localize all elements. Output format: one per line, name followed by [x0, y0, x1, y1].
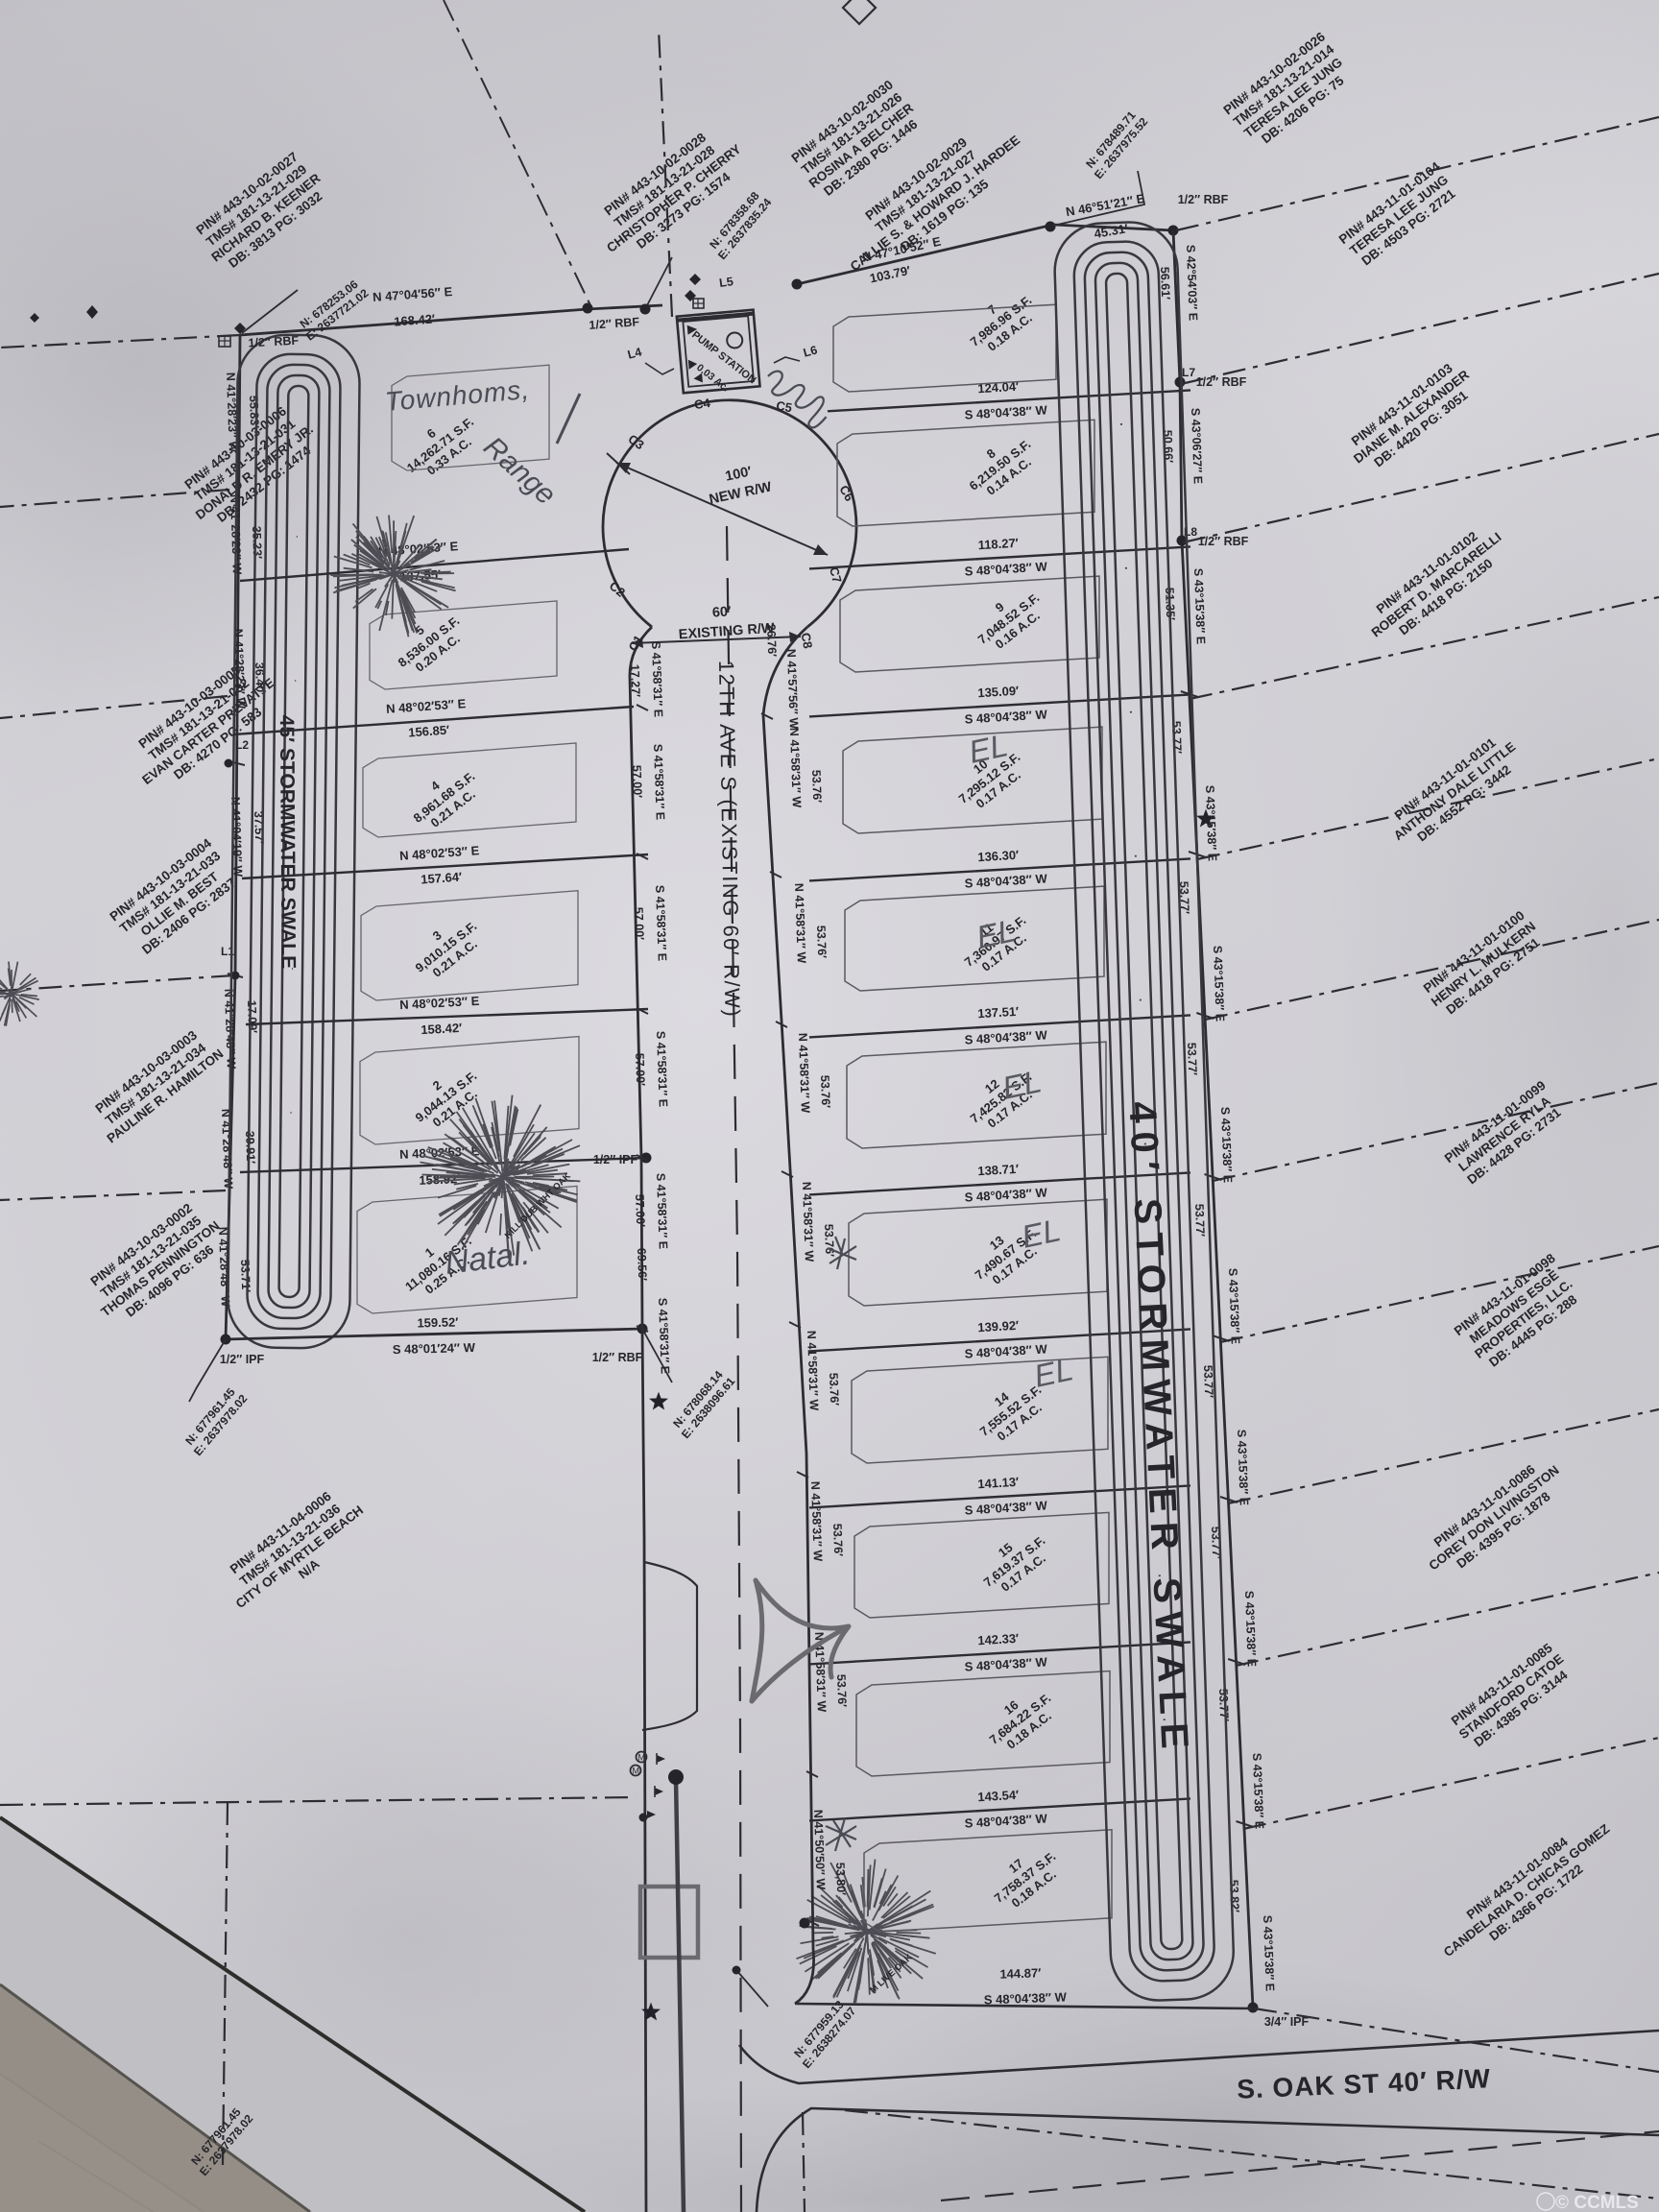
svg-text:39.91′: 39.91′	[243, 1131, 257, 1165]
svg-text:17.27′: 17.27′	[628, 664, 642, 698]
svg-text:53.77′: 53.77′	[1169, 721, 1184, 755]
svg-text:1/2″ IPF: 1/2″ IPF	[593, 1153, 638, 1166]
svg-text:S 43°15′38″ E: S 43°15′38″ E	[1235, 1430, 1251, 1506]
svg-text:53.77′: 53.77′	[1216, 1689, 1231, 1722]
svg-text:53.76′: 53.76′	[809, 770, 824, 804]
svg-text:S 42°54′03″ E: S 42°54′03″ E	[1184, 245, 1200, 322]
svg-text:L5: L5	[718, 275, 733, 290]
svg-text:© CCMLS: © CCMLS	[1555, 2193, 1639, 2212]
svg-text:53.76′: 53.76′	[818, 1075, 832, 1109]
svg-text:53.77′: 53.77′	[1185, 1043, 1199, 1076]
svg-text:L2: L2	[235, 738, 249, 752]
svg-text:53.76′: 53.76′	[814, 926, 829, 959]
svg-text:144.87′: 144.87′	[999, 1965, 1041, 1981]
svg-text:S 41°58′31″ E: S 41°58′31″ E	[653, 885, 669, 962]
svg-text:N 41°58′31″ W: N 41°58′31″ W	[805, 1331, 821, 1411]
svg-text:17.09′: 17.09′	[245, 1000, 259, 1034]
svg-text:S 43°15′38″ E: S 43°15′38″ E	[1261, 1915, 1277, 1992]
svg-text:N 41°58′31″ W: N 41°58′31″ W	[787, 728, 804, 808]
svg-text:1/2″ RBF: 1/2″ RBF	[1196, 375, 1247, 389]
svg-text:53.77′: 53.77′	[1192, 1204, 1207, 1238]
svg-text:1/2″ RBF: 1/2″ RBF	[592, 1351, 643, 1364]
svg-text:C5: C5	[775, 398, 793, 416]
svg-text:57.00′: 57.00′	[633, 1053, 647, 1087]
svg-text:N 41°28′48″ W: N 41°28′48″ W	[219, 1109, 235, 1190]
svg-text:S 41°58′31″ E: S 41°58′31″ E	[649, 641, 665, 718]
svg-text:57.00′: 57.00′	[632, 907, 646, 941]
svg-text:53.76′: 53.76′	[830, 1524, 845, 1557]
svg-text:1/2″ IPF: 1/2″ IPF	[220, 1353, 265, 1366]
svg-text:53.82′: 53.82′	[1227, 1880, 1241, 1913]
svg-text:139.92′: 139.92′	[977, 1318, 1020, 1335]
svg-text:1/2″ RBF: 1/2″ RBF	[1198, 535, 1249, 548]
svg-text:N 41°04′19″ W: N 41°04′19″ W	[228, 797, 245, 878]
svg-text:57.00′: 57.00′	[633, 1194, 647, 1228]
svg-text:S 48°01′24″ W: S 48°01′24″ W	[393, 1340, 476, 1357]
svg-text:S 41°58′31″ E: S 41°58′31″ E	[651, 744, 667, 821]
svg-text:N 41°57′56″ W: N 41°57′56″ W	[784, 649, 801, 730]
svg-text:143.54′: 143.54′	[977, 1788, 1020, 1805]
svg-text:156.85′: 156.85′	[408, 723, 450, 740]
svg-text:S 43°15′38″ E: S 43°15′38″ E	[1242, 1591, 1259, 1668]
svg-text:N 41°58′31″ W: N 41°58′31″ W	[796, 1033, 812, 1114]
svg-text:1/2″ RBF: 1/2″ RBF	[248, 334, 300, 350]
svg-text:136.30′: 136.30′	[977, 848, 1020, 865]
svg-text:S 43°15′38″ E: S 43°15′38″ E	[1250, 1753, 1266, 1830]
svg-text:137.51′: 137.51′	[977, 1004, 1020, 1022]
svg-text:135.09′: 135.09′	[977, 684, 1020, 701]
svg-text:53.71′: 53.71′	[238, 1260, 252, 1293]
svg-text:S 41°58′31″ E: S 41°58′31″ E	[656, 1298, 672, 1375]
svg-text:3/4″ IPF: 3/4″ IPF	[1264, 2015, 1310, 2029]
svg-text:141.13′: 141.13′	[977, 1475, 1020, 1492]
svg-text:159.52′: 159.52′	[417, 1314, 458, 1330]
svg-text:157.64′: 157.64′	[421, 870, 463, 887]
svg-text:138.71′: 138.71′	[977, 1162, 1020, 1179]
svg-text:L7: L7	[1182, 366, 1195, 379]
svg-text:S 43°06′27″ E: S 43°06′27″ E	[1189, 408, 1205, 485]
svg-text:60′: 60′	[711, 604, 732, 620]
svg-text:S 43°15′38″ E: S 43°15′38″ E	[1191, 568, 1208, 645]
svg-text:69.56′: 69.56′	[635, 1248, 649, 1282]
svg-text:S 43°15′38″ E: S 43°15′38″ E	[1218, 1107, 1235, 1184]
svg-text:35.23′: 35.23′	[250, 526, 264, 560]
svg-text:53.76′: 53.76′	[822, 1224, 836, 1258]
svg-text:N 41°58′31″ W: N 41°58′31″ W	[808, 1481, 825, 1562]
svg-text:158.42′: 158.42′	[421, 1021, 463, 1037]
svg-text:168.42′: 168.42′	[394, 311, 436, 328]
svg-text:M: M	[633, 1767, 640, 1776]
svg-text:45′ STORMWATER SWALE: 45′ STORMWATER SWALE	[276, 715, 300, 970]
svg-text:S 41°58′31″ E: S 41°58′31″ E	[654, 1173, 670, 1250]
svg-text:118.27′: 118.27′	[977, 536, 1019, 553]
svg-text:C4: C4	[693, 396, 711, 412]
svg-text:N 41°58′31″ W: N 41°58′31″ W	[792, 883, 808, 964]
svg-text:53.76′: 53.76′	[827, 1373, 841, 1407]
svg-text:M: M	[638, 1753, 646, 1763]
svg-text:57.00′: 57.00′	[630, 765, 644, 799]
svg-text:1/2″ RBF: 1/2″ RBF	[1178, 193, 1229, 206]
svg-text:S 43°15′38″ E: S 43°15′38″ E	[1226, 1268, 1242, 1345]
svg-text:S 48°04′38″ W: S 48°04′38″ W	[984, 1989, 1068, 2007]
svg-text:26.76′: 26.76′	[764, 624, 779, 658]
svg-text:142.33′: 142.33′	[977, 1631, 1020, 1648]
svg-text:S 41°58′31″ E: S 41°58′31″ E	[654, 1031, 670, 1108]
svg-text:C8: C8	[799, 632, 816, 650]
svg-text:55.83′: 55.83′	[247, 396, 261, 429]
svg-text:53.76′: 53.76′	[834, 1674, 849, 1708]
svg-text:53,80′: 53,80′	[833, 1863, 848, 1896]
svg-text:S 43°15′38″ E: S 43°15′38″ E	[1211, 946, 1227, 1022]
